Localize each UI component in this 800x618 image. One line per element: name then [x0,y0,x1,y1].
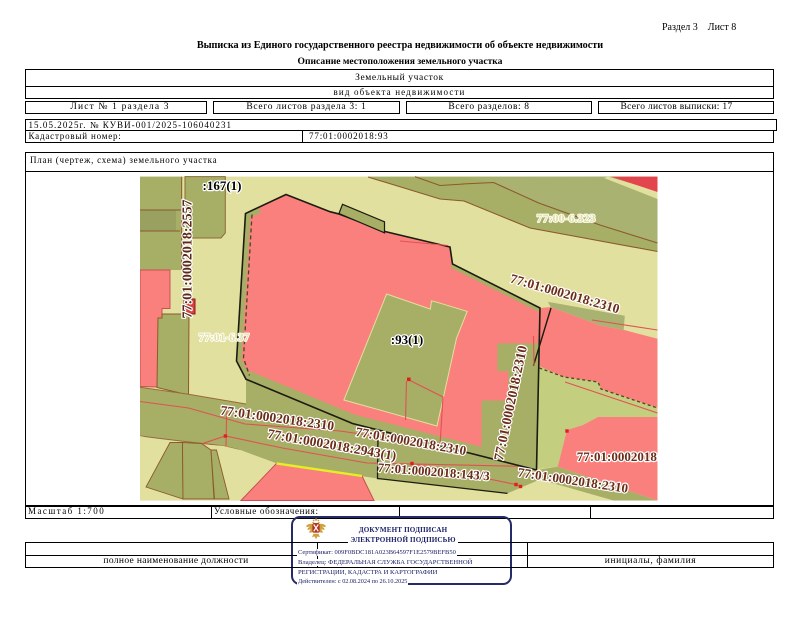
svg-text:77:01-6.37: 77:01-6.37 [199,332,250,344]
svg-text:77:01:0002018:2557: 77:01:0002018:2557 [181,200,196,319]
svg-text:77:01:0002018:2: 77:01:0002018:2 [577,449,658,464]
svg-text::167(1): :167(1) [203,178,242,193]
svg-text:77:00-6.323: 77:00-6.323 [537,211,596,225]
svg-text::93(1): :93(1) [391,332,424,347]
